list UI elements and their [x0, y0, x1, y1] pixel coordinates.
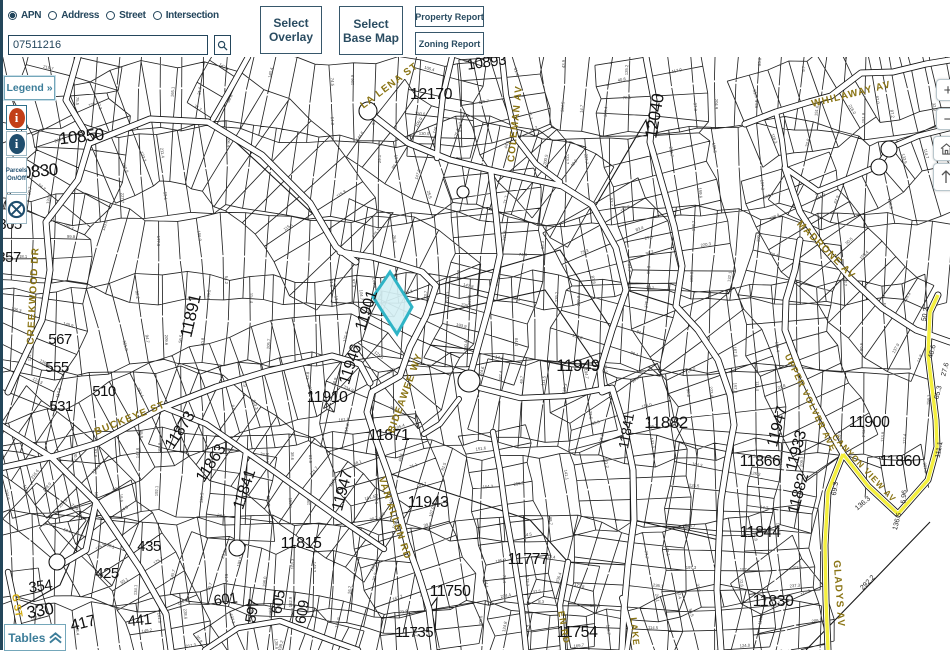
- svg-text:12170: 12170: [410, 86, 453, 103]
- svg-text:74.5: 74.5: [330, 78, 336, 87]
- svg-text:149.2: 149.2: [312, 562, 317, 573]
- svg-text:204.9: 204.9: [714, 99, 719, 110]
- svg-text:223.7: 223.7: [565, 154, 570, 165]
- svg-text:198.7: 198.7: [691, 220, 697, 231]
- svg-text:124.0: 124.0: [739, 643, 750, 649]
- svg-text:237.0: 237.0: [467, 294, 472, 305]
- svg-text:38.6: 38.6: [290, 452, 295, 461]
- svg-text:11735: 11735: [395, 624, 433, 641]
- svg-text:84.4: 84.4: [514, 338, 519, 347]
- svg-text:92.3: 92.3: [351, 279, 356, 288]
- svg-text:228.6: 228.6: [183, 608, 189, 620]
- svg-text:197.3: 197.3: [686, 565, 697, 570]
- svg-text:43.8: 43.8: [305, 371, 310, 380]
- svg-text:24.9: 24.9: [217, 513, 226, 519]
- svg-text:54.3: 54.3: [330, 117, 335, 126]
- svg-text:11815: 11815: [281, 535, 322, 552]
- svg-text:11943: 11943: [408, 494, 449, 511]
- svg-text:8.3: 8.3: [538, 599, 545, 605]
- svg-text:78.1: 78.1: [623, 95, 632, 100]
- svg-text:11866: 11866: [740, 453, 781, 470]
- svg-text:157.3: 157.3: [733, 382, 739, 393]
- svg-text:81.5: 81.5: [329, 279, 334, 288]
- svg-text:203.6: 203.6: [791, 565, 803, 571]
- svg-text:95.0: 95.0: [757, 57, 763, 66]
- svg-text:601: 601: [213, 589, 239, 609]
- svg-text:16.5: 16.5: [334, 296, 340, 305]
- svg-text:103.3: 103.3: [290, 558, 295, 569]
- svg-text:227.7: 227.7: [120, 193, 126, 204]
- svg-text:209.6: 209.6: [164, 335, 169, 346]
- svg-text:146.7: 146.7: [685, 523, 697, 529]
- svg-text:53.1: 53.1: [163, 191, 169, 200]
- svg-text:61.9: 61.9: [308, 455, 313, 464]
- svg-text:11830: 11830: [753, 593, 794, 610]
- svg-text:425: 425: [95, 565, 119, 582]
- svg-text:157.3: 157.3: [760, 179, 766, 191]
- svg-text:40.8: 40.8: [200, 337, 206, 346]
- svg-text:510: 510: [92, 383, 116, 400]
- svg-text:194.0: 194.0: [458, 122, 463, 133]
- svg-text:150.1: 150.1: [288, 498, 293, 509]
- svg-text:227.7: 227.7: [584, 153, 590, 164]
- svg-text:62.5: 62.5: [754, 99, 759, 108]
- svg-text:239.8: 239.8: [576, 295, 581, 306]
- svg-text:161.6: 161.6: [372, 277, 378, 289]
- svg-text:173.2: 173.2: [206, 289, 212, 301]
- svg-text:112.4: 112.4: [902, 433, 908, 444]
- svg-text:11750: 11750: [430, 583, 471, 600]
- svg-text:92.8: 92.8: [93, 449, 99, 458]
- svg-text:99.8: 99.8: [67, 234, 76, 239]
- svg-text:192.1: 192.1: [154, 485, 159, 496]
- svg-text:187.4: 187.4: [498, 370, 504, 381]
- svg-text:80.6: 80.6: [859, 342, 864, 351]
- svg-text:86.3: 86.3: [540, 240, 545, 249]
- svg-text:73.4: 73.4: [502, 575, 507, 584]
- svg-text:96.8: 96.8: [686, 389, 692, 398]
- svg-text:11860: 11860: [880, 453, 921, 470]
- svg-text:74.3: 74.3: [519, 252, 528, 257]
- svg-text:130.3: 130.3: [445, 291, 451, 302]
- svg-text:51.7: 51.7: [224, 574, 229, 583]
- svg-text:11777: 11777: [508, 551, 549, 568]
- svg-text:75.5: 75.5: [75, 97, 80, 106]
- svg-text:11900: 11900: [849, 414, 890, 431]
- svg-text:114.4: 114.4: [249, 293, 254, 304]
- svg-text:134.1: 134.1: [133, 584, 139, 595]
- svg-text:205.7: 205.7: [266, 338, 272, 349]
- svg-text:197.1: 197.1: [740, 567, 751, 572]
- svg-text:103.8: 103.8: [689, 271, 694, 282]
- svg-text:29.1: 29.1: [646, 285, 655, 291]
- svg-text:196.9: 196.9: [350, 74, 355, 85]
- svg-text:151.8: 151.8: [861, 112, 866, 123]
- svg-text:11844: 11844: [740, 524, 781, 541]
- svg-text:103.4: 103.4: [603, 106, 609, 118]
- svg-text:11910: 11910: [307, 389, 348, 406]
- svg-text:23.7: 23.7: [423, 290, 429, 299]
- svg-text:106.6: 106.6: [478, 615, 484, 626]
- svg-text:555: 555: [45, 359, 69, 376]
- svg-text:354: 354: [28, 576, 54, 596]
- svg-text:172.2: 172.2: [525, 575, 531, 586]
- svg-text:11949: 11949: [556, 356, 600, 375]
- svg-text:169.5: 169.5: [266, 496, 271, 507]
- svg-text:29.1: 29.1: [377, 154, 382, 163]
- svg-text:228.5: 228.5: [374, 494, 379, 505]
- svg-text:531: 531: [49, 398, 73, 415]
- svg-text:93.7: 93.7: [609, 198, 614, 207]
- svg-text:26.2: 26.2: [347, 585, 353, 594]
- svg-text:113.8: 113.8: [880, 431, 886, 442]
- svg-text:235.2: 235.2: [554, 291, 559, 302]
- svg-text:5.96: 5.96: [900, 490, 908, 504]
- svg-text:95.8: 95.8: [646, 265, 651, 274]
- svg-text:165.1: 165.1: [170, 86, 176, 98]
- svg-text:162.9: 162.9: [288, 596, 293, 607]
- svg-text:49.7: 49.7: [519, 375, 525, 384]
- svg-text:111.4: 111.4: [755, 381, 760, 392]
- svg-text:26.5: 26.5: [392, 235, 398, 244]
- svg-text:154.3: 154.3: [482, 484, 493, 490]
- svg-text:125.2: 125.2: [624, 64, 629, 75]
- svg-text:11882: 11882: [644, 413, 688, 432]
- svg-text:16.6: 16.6: [119, 494, 125, 503]
- svg-text:177.9: 177.9: [156, 236, 161, 247]
- svg-text:54.2: 54.2: [224, 276, 229, 285]
- svg-text:160.4: 160.4: [463, 340, 469, 351]
- svg-text:189.6: 189.6: [590, 603, 601, 609]
- svg-text:857: 857: [0, 249, 21, 266]
- svg-text:94.7: 94.7: [627, 264, 632, 273]
- svg-text:142.6: 142.6: [135, 447, 140, 458]
- svg-text:114.5: 114.5: [648, 625, 659, 631]
- svg-text:567: 567: [48, 331, 72, 348]
- svg-text:14.7: 14.7: [579, 104, 585, 113]
- svg-text:97.3: 97.3: [693, 103, 699, 112]
- svg-text:130.0: 130.0: [419, 131, 430, 137]
- svg-text:55.9: 55.9: [139, 430, 144, 439]
- svg-text:441: 441: [127, 611, 152, 630]
- svg-text:435: 435: [137, 538, 161, 555]
- svg-text:43.9: 43.9: [561, 59, 566, 68]
- svg-text:202.5: 202.5: [456, 269, 461, 280]
